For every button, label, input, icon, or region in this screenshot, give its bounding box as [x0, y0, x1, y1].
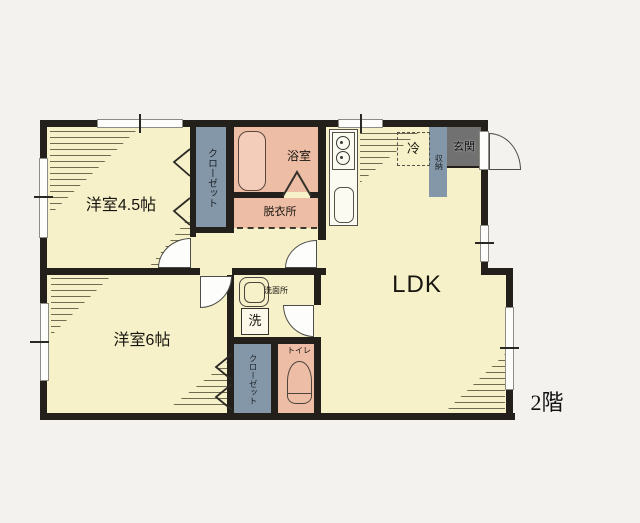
wall-bath-dressing [234, 192, 284, 198]
room-label-ldk: LDK [378, 272, 456, 298]
wall-washroom-ldk [314, 337, 321, 413]
refrigerator-box: 冷 [397, 132, 430, 166]
window-tick [30, 341, 49, 343]
window-tick [475, 242, 494, 244]
floor-badge: 2階 [518, 391, 576, 415]
room-label-toilet: トイレ [284, 347, 314, 356]
open-boundary-dashed [237, 227, 317, 232]
room-label-dressing: 脱衣所 [256, 206, 304, 218]
wall-washroom-bottom [227, 337, 321, 344]
wall-closet-bath [226, 127, 234, 233]
room-label-entrance: 玄関 [447, 141, 481, 153]
closet-b-label: クローゼット [235, 347, 270, 411]
window-tick [34, 196, 53, 198]
stove-burner-icon [336, 151, 350, 165]
bifold-door-bathroom [281, 169, 313, 198]
wall-bottom [40, 413, 515, 420]
room-label-bathroom: 浴室 [280, 150, 318, 163]
wall-right-upper [481, 169, 488, 225]
toilet-seat-line [288, 393, 311, 394]
storage-label: 収納 [429, 140, 447, 184]
washing-machine-label: 洗 [248, 314, 261, 328]
wall-right-lower [506, 272, 513, 307]
room-label-western-6: 洋室6帖 [82, 332, 202, 350]
closet-b-bifold-icon [213, 352, 234, 382]
window [39, 158, 48, 238]
refrigerator-label: 冷 [407, 142, 420, 156]
kitchen-sink-icon [334, 187, 354, 223]
wall-bath-right [318, 127, 326, 240]
wall-mid-horizontal [47, 268, 200, 275]
window-tick [139, 114, 141, 133]
room-label-washroom: 洗面所 [254, 287, 298, 296]
stove-burner-icon [336, 136, 350, 150]
closet-a-label: クローゼット [197, 132, 225, 224]
room-label-western-4-5: 洋室4.5帖 [55, 197, 187, 215]
washing-machine-box: 洗 [241, 308, 269, 335]
bathtub-icon [238, 131, 266, 191]
wall-washroom-ldk [314, 275, 321, 305]
window-tick [360, 114, 362, 133]
closet-b-bifold-icon [213, 382, 234, 412]
floor-plan: 冷 洗 洋室4.5帖 洋室6帖 LDK 浴室 脱衣所 洗面所 トイレ 玄関 クロ… [0, 0, 640, 523]
window-tick [500, 347, 519, 349]
door-arc-entrance [489, 133, 521, 170]
closet-a-bifold-icon [171, 147, 192, 178]
wall-closet-b-toilet [271, 344, 278, 413]
toilet-bowl-icon [287, 361, 312, 404]
wall-right-lower [506, 390, 513, 420]
wall-mid-horizontal [232, 268, 326, 275]
